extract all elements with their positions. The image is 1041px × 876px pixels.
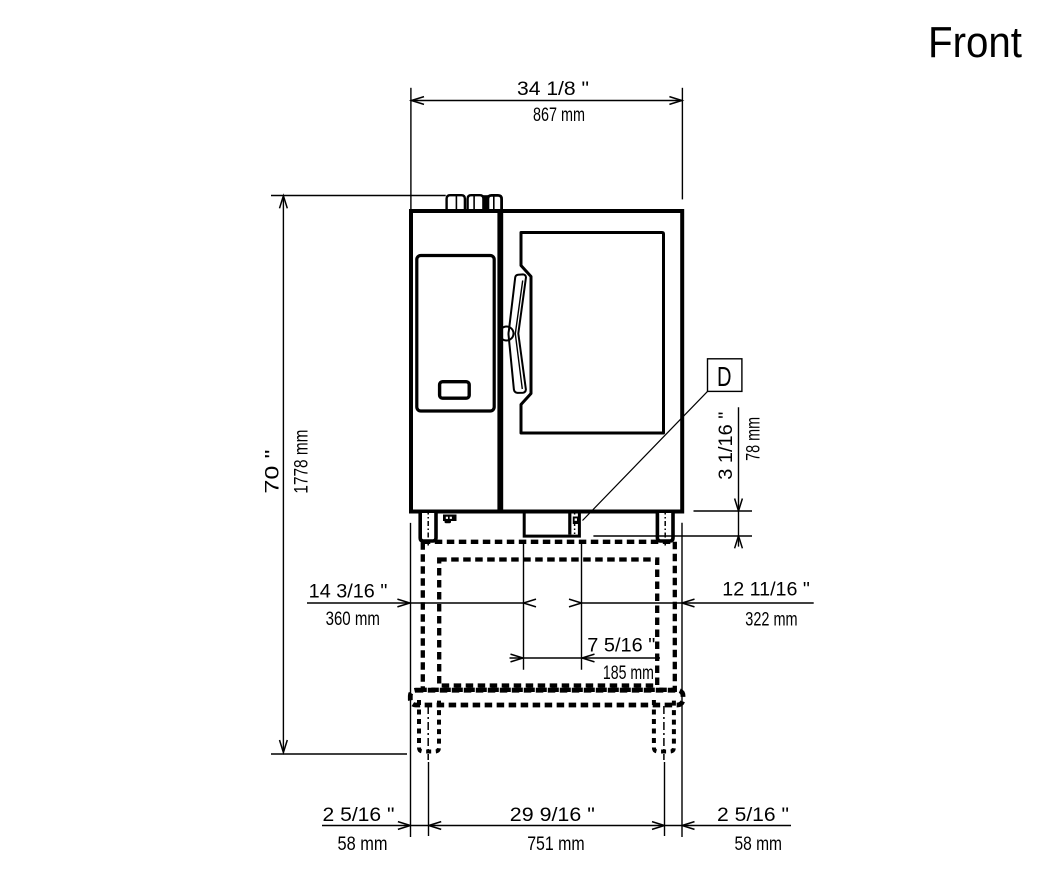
svg-text:29 9/16 ": 29 9/16 " xyxy=(510,804,595,826)
svg-text:322 mm: 322 mm xyxy=(745,609,797,631)
svg-text:14 3/16 ": 14 3/16 " xyxy=(309,581,388,603)
svg-text:Front: Front xyxy=(928,18,1022,67)
svg-text:2 5/16 ": 2 5/16 " xyxy=(323,804,395,826)
svg-text:751 mm: 751 mm xyxy=(527,833,585,855)
svg-text:70 ": 70 " xyxy=(261,450,283,494)
svg-text:360 mm: 360 mm xyxy=(326,608,380,630)
svg-text:34 1/8 ": 34 1/8 " xyxy=(517,78,589,100)
svg-text:2 5/16 ": 2 5/16 " xyxy=(717,804,789,826)
svg-text:12 11/16 ": 12 11/16 " xyxy=(722,579,810,601)
svg-text:185 mm: 185 mm xyxy=(603,662,654,684)
svg-text:1778 mm: 1778 mm xyxy=(290,430,312,494)
svg-text:78 mm: 78 mm xyxy=(742,417,764,461)
svg-text:867 mm: 867 mm xyxy=(533,104,585,126)
svg-text:58 mm: 58 mm xyxy=(338,833,388,855)
svg-text:D: D xyxy=(717,361,732,392)
svg-text:7 5/16 ": 7 5/16 " xyxy=(587,635,655,657)
svg-text:58 mm: 58 mm xyxy=(735,833,783,855)
svg-text:3 1/16 ": 3 1/16 " xyxy=(715,412,737,480)
